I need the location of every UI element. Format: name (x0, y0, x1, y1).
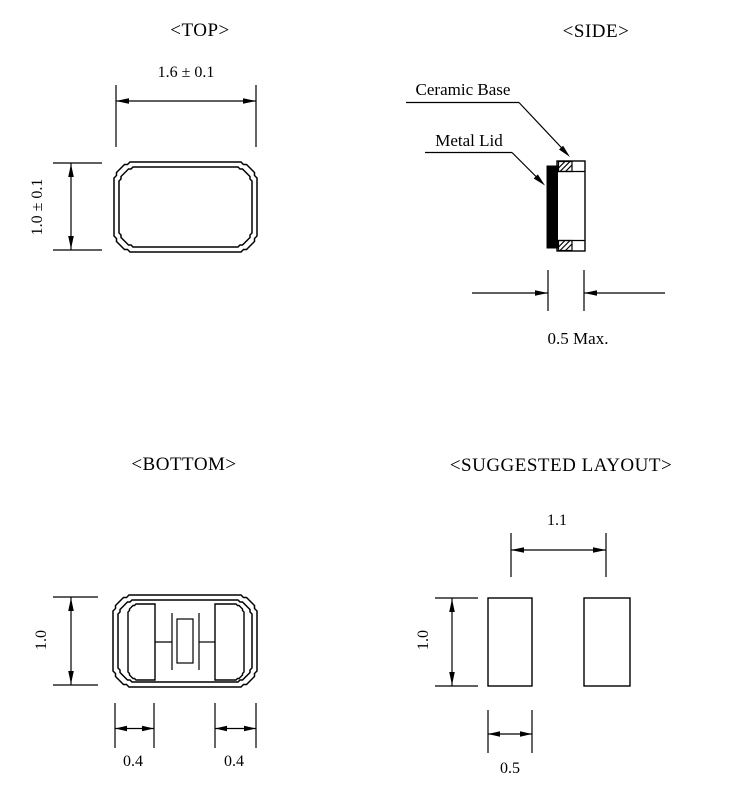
bottom-view-title: <BOTTOM> (114, 455, 254, 476)
layout-pad-width-dimension-label: 0.5 (470, 760, 550, 778)
layout-pad-left (488, 598, 532, 686)
ceramic-base-body (557, 161, 585, 251)
drawing-linework (0, 0, 735, 802)
crystal-symbol (155, 613, 215, 670)
arrowhead-icon (449, 672, 455, 685)
arrowhead-icon (520, 731, 532, 737)
arrowhead-icon (511, 547, 524, 553)
top-package-outline (114, 162, 257, 252)
side-package-profile (547, 161, 586, 251)
bottom-package-outline (113, 595, 257, 687)
arrowhead-icon (584, 290, 597, 296)
suggested-layout-title: <SUGGESTED LAYOUT> (431, 456, 691, 477)
metal-lid-label: Metal Lid (409, 132, 529, 151)
top-height-dimension-label: 1.0 ± 0.1 (29, 162, 47, 252)
bottom-pads (128, 604, 244, 680)
arrowhead-icon (215, 726, 227, 732)
arrowhead-icon (68, 598, 74, 611)
arrowhead-icon (142, 726, 154, 732)
metal-lid-bar (547, 166, 559, 249)
arrowhead-icon (593, 547, 606, 553)
layout-pitch-dimension-label: 1.1 (517, 512, 597, 530)
bottom-view-linework (53, 595, 257, 748)
arrowhead-icon (449, 599, 455, 612)
arrowhead-icon (535, 290, 548, 296)
arrowhead-icon (243, 98, 256, 104)
top-width-dimension-label: 1.6 ± 0.1 (116, 64, 256, 82)
arrowhead-icon (488, 731, 500, 737)
suggested-layout-linework (435, 533, 630, 753)
layout-pad-height-dimension-label: 1.0 (415, 595, 433, 685)
arrowhead-icon (68, 671, 74, 684)
arrowhead-icon (115, 726, 127, 732)
side-view-title: <SIDE> (526, 22, 666, 43)
bottom-left-pad-dimension-label: 0.4 (93, 753, 173, 771)
arrowhead-icon (68, 164, 74, 177)
arrowhead-icon (68, 236, 74, 249)
ceramic-base-label: Ceramic Base (403, 81, 523, 100)
terminal-hatch-bottom (559, 241, 573, 251)
bottom-right-pad-dimension-label: 0.4 (194, 753, 274, 771)
top-view-linework (53, 85, 257, 252)
arrowhead-icon (116, 98, 129, 104)
package-dimension-drawing: <TOP> 1.6 ± 0.1 1.0 ± 0.1 <SIDE> Ceramic… (0, 0, 735, 802)
bottom-height-dimension-label: 1.0 (33, 595, 51, 685)
layout-pad-right (584, 598, 630, 686)
arrowhead-icon (244, 726, 256, 732)
top-view-title: <TOP> (130, 21, 270, 42)
terminal-hatch-top (559, 162, 573, 172)
side-thickness-dimension-label: 0.5 Max. (508, 330, 648, 349)
